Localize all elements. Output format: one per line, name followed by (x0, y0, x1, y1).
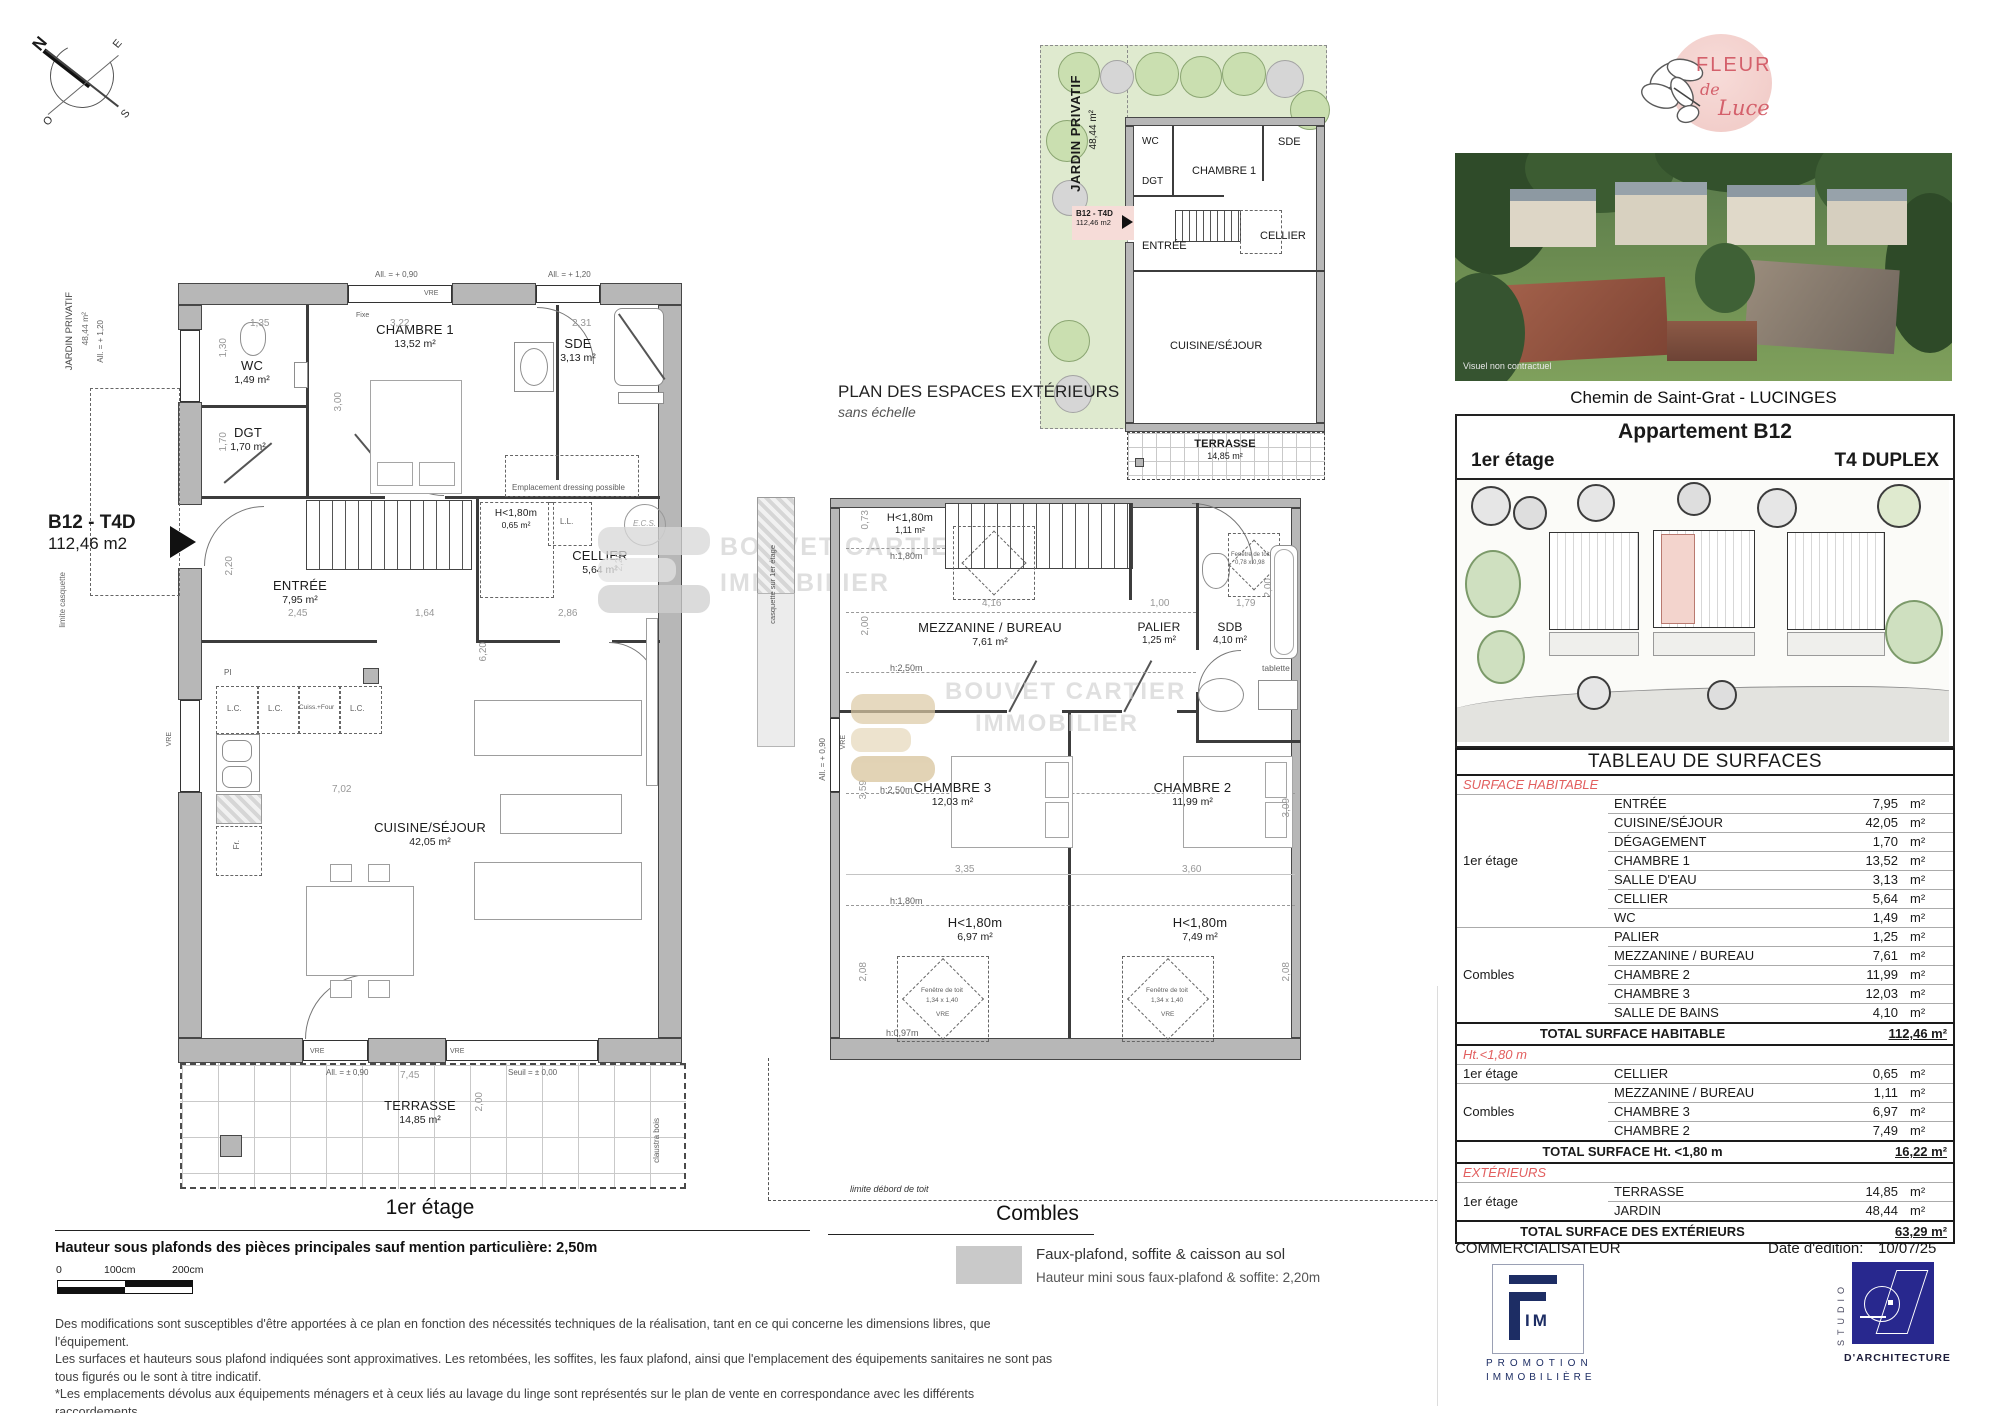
unit: m² (1904, 1004, 1954, 1024)
bathtub (1270, 545, 1298, 659)
site-tree (1885, 600, 1943, 664)
photo-roof (1505, 277, 1669, 363)
unit: m² (1904, 852, 1954, 871)
room-label-h1: H<1,80m 1,11 m² (878, 512, 942, 535)
site-tree (1577, 676, 1611, 710)
apartment-title: Appartement B12 (1457, 420, 1953, 444)
roof-window-vre: VRE (1161, 1011, 1174, 1018)
unit: m² (1904, 833, 1954, 852)
dim: 4,16 (982, 598, 1001, 609)
roof-window-vre: VRE (936, 1011, 949, 1018)
legend-line2: Hauteur mini sous faux-plafond & soffite… (1036, 1270, 1320, 1285)
total-value: 16,22 m² (1808, 1141, 1954, 1163)
room-area: 5,64 (1808, 890, 1904, 909)
dim: 2,08 (858, 962, 869, 981)
room-label-ch2: CHAMBRE 2 11,99 m² (1135, 780, 1250, 808)
fleur-de-luce-logo: FLEUR de Luce (1630, 28, 1810, 143)
photo-chalet (1615, 195, 1707, 245)
site-tree (1477, 630, 1525, 684)
scale-bar (57, 1280, 193, 1294)
site-tree (1513, 496, 1547, 530)
annotation: h:0,97m (886, 1028, 919, 1038)
annotation: All. = + 0,90 (818, 738, 827, 781)
project-photo: Visuel non contractuel (1455, 153, 1952, 381)
site-building (1549, 532, 1639, 630)
room-name: ENTRÉE (1608, 795, 1808, 814)
table-title: TABLEAU DE SURFACES (1456, 749, 1954, 775)
height-line (846, 612, 1196, 613)
room-area: 12,03 (1808, 985, 1904, 1004)
roof-window-label: Fenêtre de toit (1231, 552, 1270, 558)
room-name: TERRASSE (1608, 1183, 1808, 1202)
disclaimer-line: *Les emplacements dévolus aux équipement… (55, 1386, 1055, 1413)
annotation: h:2,50m (890, 663, 923, 673)
room-area: 1,25 (1808, 928, 1904, 947)
room-name: CHAMBRE 3 (1608, 1103, 1808, 1122)
unit: m² (1904, 985, 1954, 1004)
legend-swatch (956, 1246, 1022, 1284)
photo-chalet (1827, 201, 1907, 245)
ceiling-note: Hauteur sous plafonds des pièces princip… (55, 1240, 597, 1256)
fim-frame: IM (1492, 1264, 1584, 1354)
fim-mark (1509, 1275, 1557, 1284)
casquette-label: casquette sur 1er étage (768, 545, 777, 624)
room-label-mez: MEZZANINE / BUREAU 7,61 m² (915, 620, 1065, 648)
unit: m² (1904, 1202, 1954, 1222)
pillow (1045, 802, 1069, 838)
fim-sub2: IMMOBILIÈRE (1486, 1372, 1590, 1383)
logo-de: de (1700, 80, 1720, 99)
roof-window-diamond (961, 530, 1026, 595)
room-label-sdb: SDB 4,10 m² (1205, 620, 1255, 646)
dim: 3,60 (1182, 864, 1201, 875)
room-name: CELLIER (1608, 1065, 1808, 1084)
unit: m² (1904, 1084, 1954, 1103)
site-tree (1677, 482, 1711, 516)
site-building (1787, 532, 1885, 630)
partition (1129, 503, 1132, 600)
group-label: 1er étage (1456, 1065, 1608, 1084)
unit: m² (1904, 909, 1954, 928)
roof-window-size: 1,34 x 1,40 (926, 997, 958, 1004)
unit: m² (1904, 795, 1954, 814)
room-name: WC (1608, 909, 1808, 928)
studio-art-dot (1888, 1300, 1893, 1305)
room-name: CHAMBRE 1 (1608, 852, 1808, 871)
group-label: Combles (1456, 1084, 1608, 1142)
room-name: MEZZANINE / BUREAU (1608, 947, 1808, 966)
site-plan (1457, 480, 1949, 742)
roof-window-size: 0,78 x 0,98 (1235, 560, 1265, 566)
toilet (1202, 553, 1230, 589)
room-name: MEZZANINE / BUREAU (1608, 1084, 1808, 1103)
disclaimer-line: Des modifications sont susceptibles d'êt… (55, 1316, 1055, 1351)
room-area: 14,85 (1808, 1183, 1904, 1202)
photo-tree (1695, 243, 1755, 313)
site-tree (1757, 488, 1797, 528)
wm-bar (851, 728, 911, 752)
partition (1196, 740, 1301, 743)
roof-overhang (768, 1200, 1438, 1201)
watermark-logo (851, 694, 935, 782)
room-name: CUISINE/SÉJOUR (1608, 814, 1808, 833)
room-name: CELLIER (1608, 890, 1808, 909)
dim: 2,00 (1263, 578, 1274, 597)
roof-window-label: Fenêtre de toit (1146, 987, 1188, 994)
apartment-type: T4 DUPLEX (1834, 450, 1939, 472)
room-name: SALLE D'EAU (1608, 871, 1808, 890)
height-line (846, 548, 945, 549)
site-terrace (1549, 632, 1639, 656)
room-area: 1,49 (1808, 909, 1904, 928)
scale-0: 0 (56, 1264, 62, 1276)
plan2-title-rule (828, 1234, 1094, 1235)
room-area: 42,05 (1808, 814, 1904, 833)
studio-art-line (1860, 1316, 1886, 1318)
site-tree (1471, 486, 1511, 526)
room-area: 7,95 (1808, 795, 1904, 814)
unit: m² (1904, 1103, 1954, 1122)
fim-im: IM (1525, 1311, 1550, 1331)
project-address: Chemin de Saint-Grat - LUCINGES (1455, 388, 1952, 408)
total-label: TOTAL SURFACE Ht. <1,80 m (1456, 1141, 1808, 1163)
group-label: Combles (1456, 928, 1608, 1024)
roof-window: Fenêtre de toit 1,34 x 1,40 VRE (1122, 956, 1214, 1042)
annotation: h:1,80m (890, 551, 923, 561)
apartment-box: Appartement B12 1er étage T4 DUPLEX (1455, 414, 1955, 748)
unit: m² (1904, 1183, 1954, 1202)
room-label-h2: H<1,80m 7,49 m² (1160, 915, 1240, 943)
fim-logo: IM PROMOTION IMMOBILIÈRE (1492, 1264, 1584, 1384)
apartment-floor: 1er étage (1471, 450, 1554, 472)
dim: 3,09 (1281, 798, 1292, 817)
room-name: CHAMBRE 2 (1608, 1122, 1808, 1142)
pillow (1265, 762, 1287, 798)
plan-combles: casquette sur 1er étage (0, 0, 1450, 1300)
annotation: h:1,80m (890, 896, 923, 906)
unit: m² (1904, 947, 1954, 966)
edition-date: 10/07/25 (1878, 1240, 1936, 1257)
edition-label: Date d'édition: (1768, 1240, 1863, 1257)
dim: 3,59 (858, 780, 869, 799)
roof-window (953, 526, 1035, 600)
annotation: VRE (840, 735, 847, 749)
dim: 1,00 (1150, 598, 1169, 609)
annotation: tablette (1262, 663, 1290, 673)
fim-mark (1509, 1292, 1520, 1340)
photo-roof (1667, 321, 1757, 361)
fim-sub1: PROMOTION (1486, 1358, 1590, 1369)
unit: m² (1904, 871, 1954, 890)
site-tree (1877, 484, 1921, 528)
section-label: EXTÉRIEURS (1456, 1163, 1954, 1183)
photo-tree (1655, 153, 1835, 193)
studio-square (1852, 1262, 1934, 1344)
annotation: h:2,50m (880, 785, 913, 795)
site-road (1457, 686, 1949, 742)
fim-mark (1520, 1292, 1546, 1301)
disclaimer: Des modifications sont susceptibles d'êt… (55, 1316, 1055, 1413)
group-label: 1er étage (1456, 1183, 1608, 1222)
room-area: 48,44 (1808, 1202, 1904, 1222)
site-terrace (1787, 632, 1885, 656)
room-area: 11,99 (1808, 966, 1904, 985)
pillow (1045, 762, 1069, 798)
room-area: 4,10 (1808, 1004, 1904, 1024)
bathtub-inner (1274, 549, 1294, 655)
studio-name: D'ARCHITECTURE (1844, 1352, 1951, 1364)
plan2-title: Combles (905, 1202, 1170, 1226)
watermark-text: BOUVET CARTIER (945, 678, 1186, 706)
photo-roof (1744, 260, 1899, 354)
logo-fleur: FLEUR (1696, 54, 1772, 77)
site-tree (1707, 680, 1737, 710)
watermark-text: IMMOBILIER (975, 710, 1139, 738)
unit: m² (1904, 966, 1954, 985)
room-name: DÉGAGEMENT (1608, 833, 1808, 852)
logo-luce: Luce (1718, 96, 1770, 120)
dim: 3,35 (955, 864, 974, 875)
room-name: CHAMBRE 3 (1608, 985, 1808, 1004)
scale-seg (125, 1287, 192, 1293)
roof-window-label: Fenêtre de toit (921, 987, 963, 994)
dim: 2,08 (1281, 962, 1292, 981)
dim: 2,00 (860, 616, 871, 635)
room-area: 3,13 (1808, 871, 1904, 890)
shelf (1258, 680, 1298, 710)
total-value: 112,46 m² (1808, 1023, 1954, 1045)
unit: m² (1904, 814, 1954, 833)
photo-chalet (1727, 197, 1815, 245)
unit: m² (1904, 928, 1954, 947)
legend-line1: Faux-plafond, soffite & caisson au sol (1036, 1246, 1285, 1263)
disclaimer-line: Les surfaces et hauteurs sous plafond in… (55, 1351, 1055, 1386)
scale-200: 200cm (172, 1264, 204, 1276)
unit: m² (1904, 890, 1954, 909)
floorplan-sheet: N E S O (0, 0, 2000, 1413)
room-area: 7,61 (1808, 947, 1904, 966)
commercialisateur-label: COMMERCIALISATEUR (1455, 1240, 1621, 1257)
room-name: SALLE DE BAINS (1608, 1004, 1808, 1024)
site-building-highlight (1661, 534, 1695, 624)
roof-overhang (768, 1058, 769, 1200)
wm-bar (851, 756, 935, 782)
partition (1196, 503, 1199, 650)
dim: 1,79 (1236, 598, 1255, 609)
unit: m² (1904, 1122, 1954, 1142)
room-name: PALIER (1608, 928, 1808, 947)
dim: 0,73 (860, 510, 871, 529)
photo-chalet (1510, 201, 1596, 247)
photo-disclaimer: Visuel non contractuel (1463, 361, 1551, 371)
total-label: TOTAL SURFACE HABITABLE (1456, 1023, 1808, 1045)
room-name: CHAMBRE 2 (1608, 966, 1808, 985)
scale-100: 100cm (104, 1264, 136, 1276)
room-area: 1,11 (1808, 1084, 1904, 1103)
room-area: 6,97 (1808, 1103, 1904, 1122)
unit: m² (1904, 1065, 1954, 1084)
scale-seg (58, 1287, 125, 1293)
surface-table: TABLEAU DE SURFACES SURFACE HABITABLE1er… (1455, 748, 1953, 1244)
group-label: 1er étage (1456, 795, 1608, 928)
site-tree (1577, 484, 1615, 522)
section-label: Ht.<1,80 m (1456, 1045, 1954, 1065)
washbasin (1198, 678, 1244, 712)
room-area: 1,70 (1808, 833, 1904, 852)
partition (1177, 710, 1196, 713)
roof-overhang-label: limite débord de toit (850, 1184, 929, 1194)
room-area: 0,65 (1808, 1065, 1904, 1084)
site-terrace (1653, 632, 1755, 656)
room-name: JARDIN (1608, 1202, 1808, 1222)
dim-line (846, 874, 1295, 875)
room-label-h3: H<1,80m 6,97 m² (935, 915, 1015, 943)
wall (830, 508, 840, 718)
studio-side-label: STUDIO (1836, 1264, 1846, 1346)
studio-architecture-logo: STUDIO D'ARCHITECTURE (1836, 1262, 1946, 1372)
layout-divider (1437, 986, 1438, 1406)
room-area: 13,52 (1808, 852, 1904, 871)
roof-window-size: 1,34 x 1,40 (1151, 997, 1183, 1004)
site-tree (1465, 550, 1521, 618)
room-area: 7,49 (1808, 1122, 1904, 1142)
window (830, 718, 840, 792)
room-label-palier: PALIER 1,25 m² (1128, 620, 1190, 646)
wall (830, 792, 840, 1038)
wm-bar (851, 694, 935, 724)
section-label: SURFACE HABITABLE (1456, 775, 1954, 795)
